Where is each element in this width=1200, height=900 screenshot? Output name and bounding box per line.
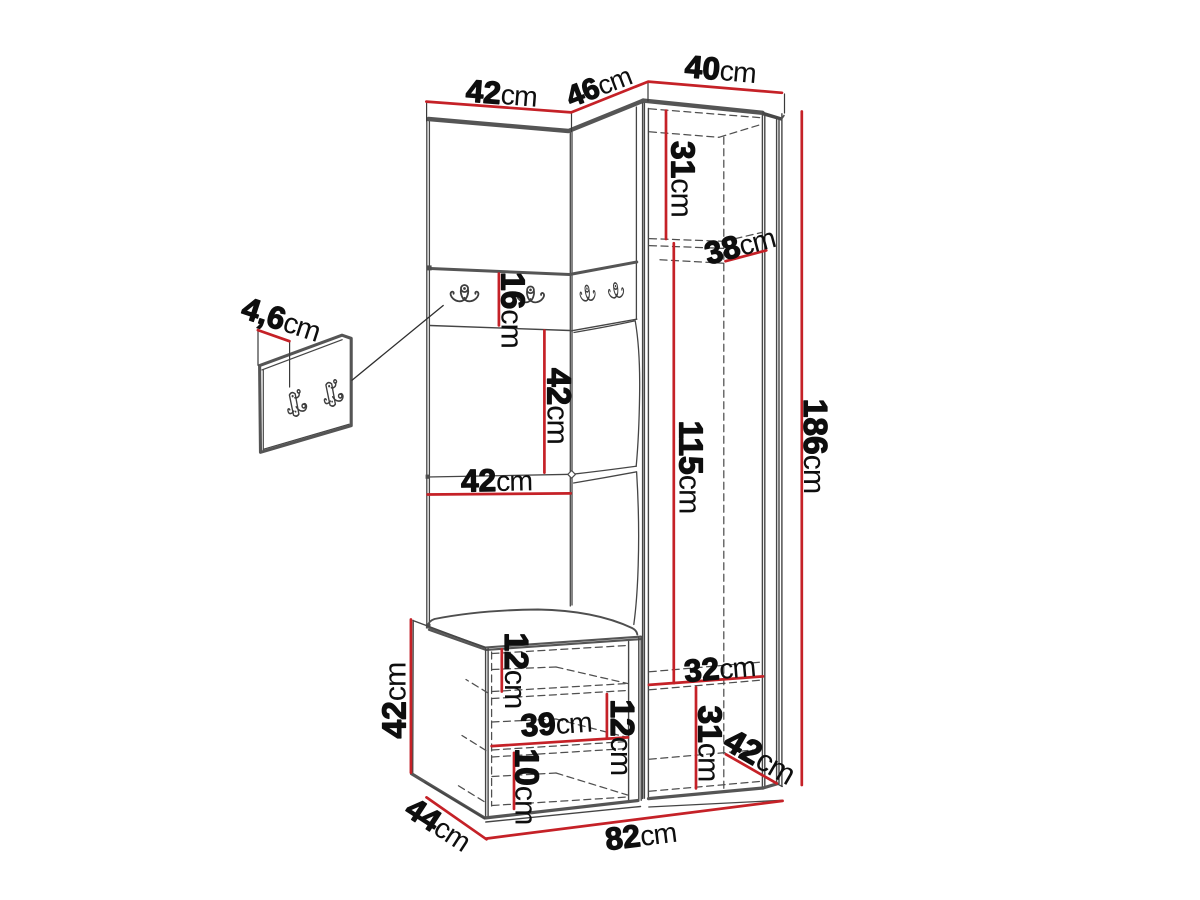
svg-text:115cm: 115cm xyxy=(672,421,709,514)
svg-text:32cm: 32cm xyxy=(683,647,757,689)
svg-text:10cm: 10cm xyxy=(508,749,545,825)
svg-text:16cm: 16cm xyxy=(494,272,531,348)
svg-text:39cm: 39cm xyxy=(519,703,592,744)
svg-text:31cm: 31cm xyxy=(691,706,728,782)
svg-text:12cm: 12cm xyxy=(497,633,534,709)
svg-text:31cm: 31cm xyxy=(664,141,701,217)
svg-text:42cm: 42cm xyxy=(377,663,414,739)
svg-text:42cm: 42cm xyxy=(461,461,533,498)
svg-text:12cm: 12cm xyxy=(603,699,640,775)
svg-text:186cm: 186cm xyxy=(796,399,833,494)
svg-text:42cm: 42cm xyxy=(540,368,577,444)
